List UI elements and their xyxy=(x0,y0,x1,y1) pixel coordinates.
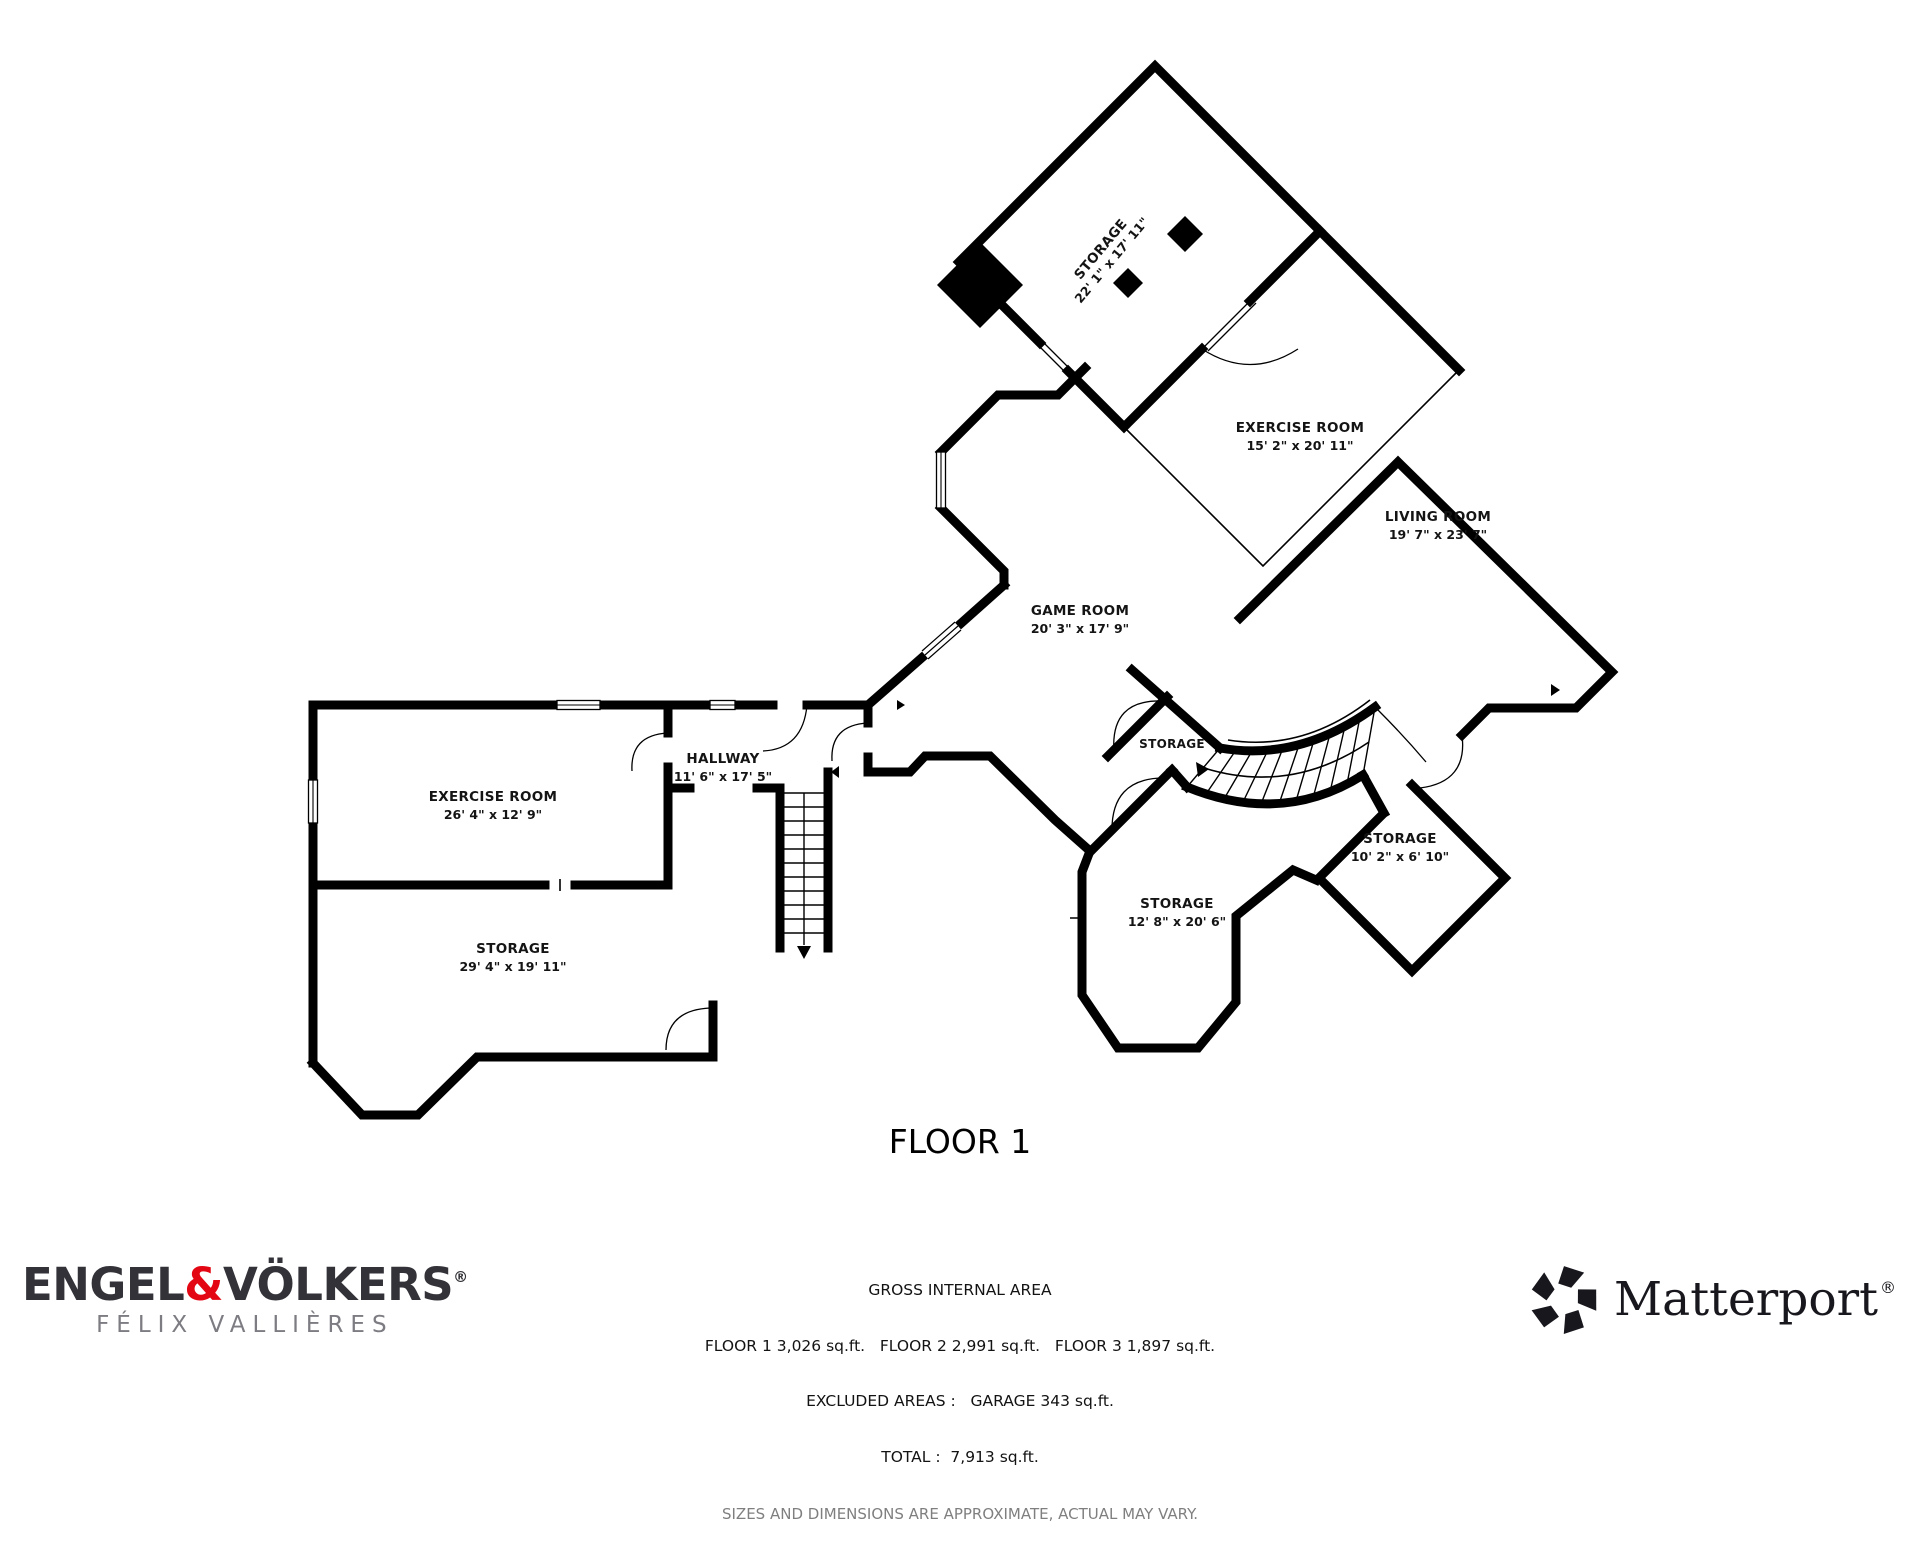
engel-voelkers-wordmark: ENGEL&VÖLKERS® xyxy=(22,1254,468,1308)
room-label-storage-diamond: STORAGE xyxy=(1363,831,1437,847)
stair-down-arrow xyxy=(797,946,811,959)
column xyxy=(1167,216,1203,252)
room-label-storage-center: STORAGE xyxy=(1140,896,1214,912)
entry-tick xyxy=(897,700,905,710)
matterport-wordmark: Matterport xyxy=(1614,1260,1878,1340)
doors xyxy=(632,299,1463,1050)
room-label-exercise-top: EXERCISE ROOM xyxy=(1236,420,1365,436)
door-arc xyxy=(1378,710,1426,762)
floor-title: FLOOR 1 xyxy=(889,1122,1032,1161)
room-dims-hallway: 11' 6" x 17' 5" xyxy=(674,769,772,784)
ev-ampersand: & xyxy=(184,1258,223,1311)
column xyxy=(1113,268,1143,298)
room-label-exercise-left: EXERCISE ROOM xyxy=(429,789,558,805)
floor-areas-line: FLOOR 1 3,026 sq.ft. FLOOR 2 2,991 sq.ft… xyxy=(705,1337,1215,1356)
excluded-areas-line: EXCLUDED AREAS : GARAGE 343 sq.ft. xyxy=(705,1392,1215,1411)
engel-voelkers-logo: ENGEL&VÖLKERS® FÉLIX VALLIÈRES xyxy=(22,1254,468,1338)
room-label-hallway: HALLWAY xyxy=(686,751,759,767)
room-label-storage-stairs: STORAGE xyxy=(1139,737,1205,751)
entry-tick xyxy=(1551,684,1560,696)
disclaimer-text: SIZES AND DIMENSIONS ARE APPROXIMATE, AC… xyxy=(705,1503,1215,1524)
room-label-game: GAME ROOM xyxy=(1031,603,1129,619)
room-dims-exercise-top: 15' 2" x 20' 11" xyxy=(1246,438,1353,453)
window-icon xyxy=(922,622,961,659)
window-icon xyxy=(557,701,600,710)
windows xyxy=(309,452,962,823)
door-arc xyxy=(763,705,807,751)
ev-name-left: ENGEL xyxy=(22,1258,184,1311)
room-label-storage-left: STORAGE xyxy=(476,941,550,957)
door-arc xyxy=(1202,299,1298,365)
door-arc xyxy=(632,733,668,771)
door-arc xyxy=(832,723,868,761)
ev-name-right: VÖLKERS xyxy=(223,1258,453,1311)
straight-stairs xyxy=(784,793,824,945)
floorplan-page: { "floor_title": "FLOOR 1", "rooms": [ {… xyxy=(0,0,1920,1357)
total-area-line: TOTAL : 7,913 sq.ft. xyxy=(705,1448,1215,1467)
agent-name: FÉLIX VALLIÈRES xyxy=(22,1312,468,1338)
window-icon xyxy=(710,701,735,710)
walls xyxy=(313,66,1612,1115)
room-dims-storage-center: 12' 8" x 20' 6" xyxy=(1128,914,1226,929)
room-dims-storage-left: 29' 4" x 19' 11" xyxy=(459,959,566,974)
room-dims-storage-diamond: 10' 2" x 6' 10" xyxy=(1351,849,1449,864)
floorplan-svg: STORAGE 22' 1" x 17' 11" EXERCISE ROOM 1… xyxy=(0,0,1920,1357)
room-dims-game: 20' 3" x 17' 9" xyxy=(1031,621,1129,636)
solid-masses xyxy=(937,216,1203,328)
matterport-pinwheel-icon xyxy=(1528,1263,1600,1337)
window-icon xyxy=(309,780,318,823)
registered-trademark-icon: ® xyxy=(453,1268,468,1286)
room-label-living: LIVING ROOM xyxy=(1385,509,1491,525)
door-arc xyxy=(666,1008,710,1050)
room-dims-exercise-left: 26' 4" x 12' 9" xyxy=(444,807,542,822)
registered-trademark-icon: ® xyxy=(1880,1278,1896,1297)
matterport-logo: Matterport ® xyxy=(1528,1260,1896,1340)
window-icon xyxy=(937,452,946,508)
gross-internal-area-title: GROSS INTERNAL AREA xyxy=(705,1281,1215,1300)
area-summary: GROSS INTERNAL AREA FLOOR 1 3,026 sq.ft.… xyxy=(705,1244,1215,1542)
room-dims-living: 19' 7" x 23' 7" xyxy=(1389,527,1487,542)
